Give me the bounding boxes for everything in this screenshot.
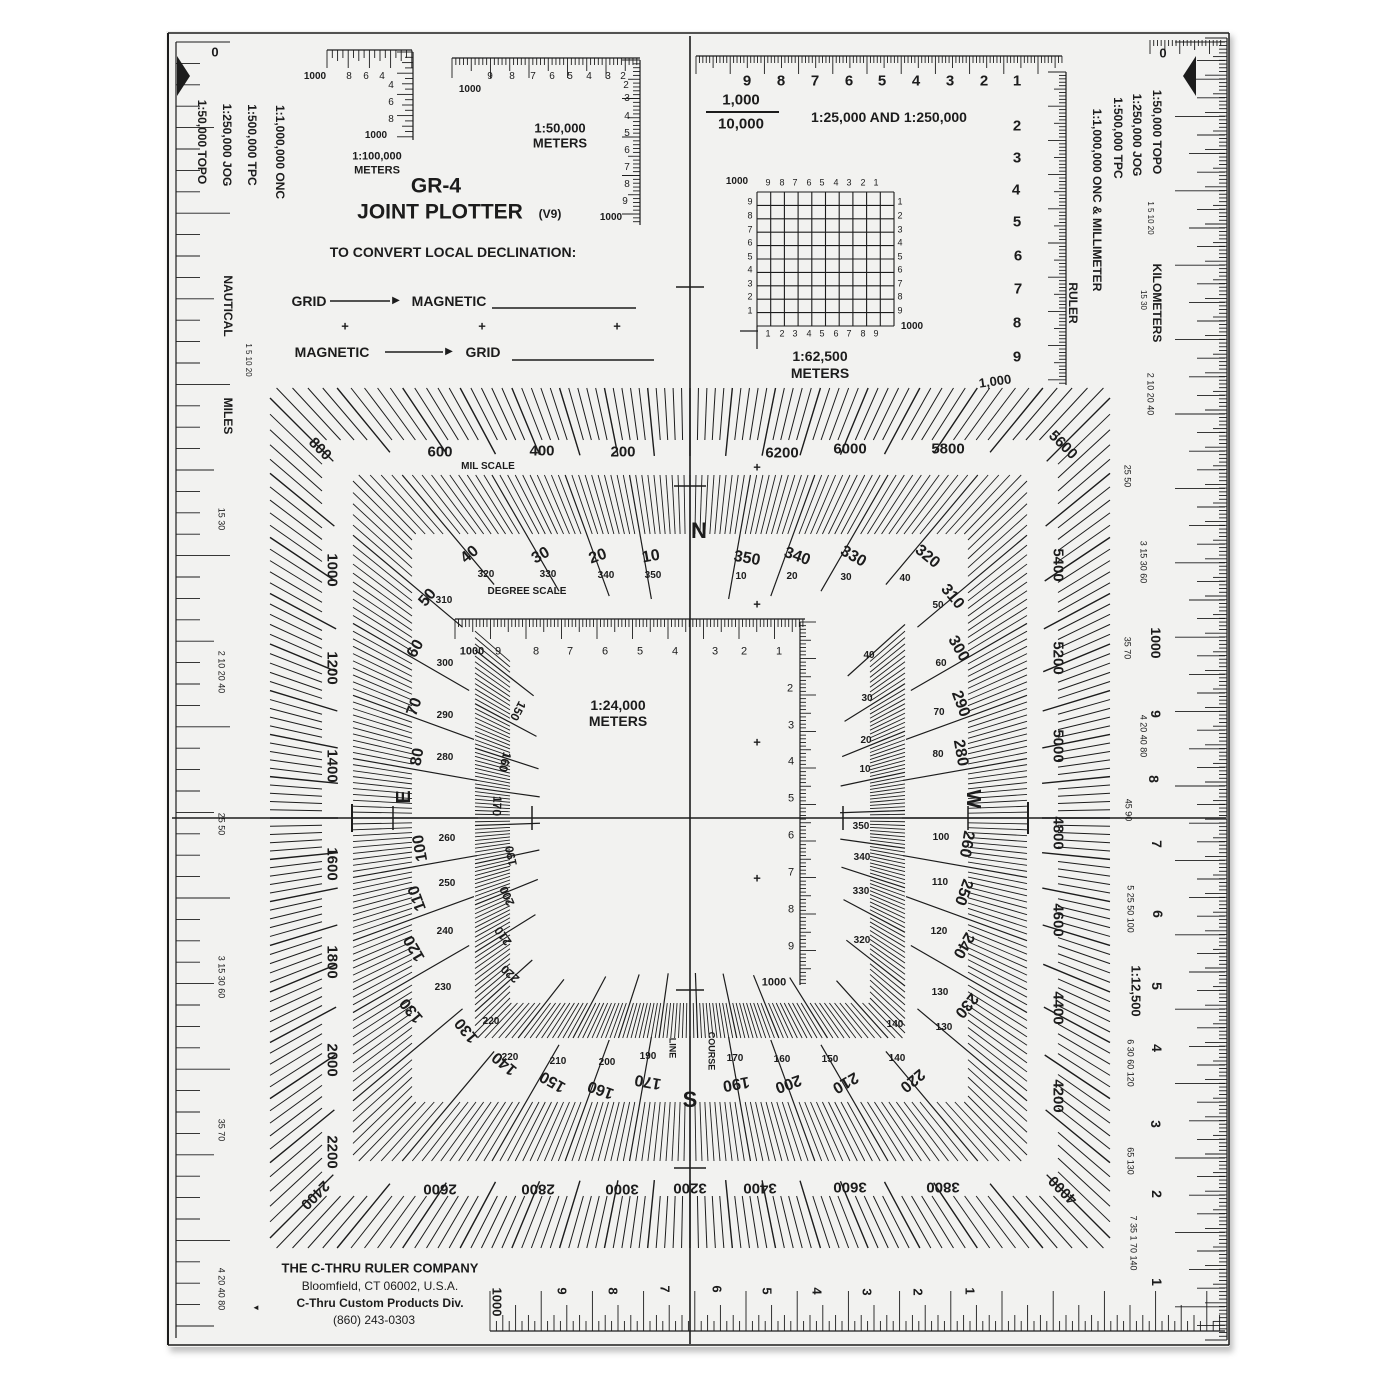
grid62-num: 2 xyxy=(779,330,784,339)
plus-mark: + xyxy=(753,872,761,885)
deg-small: 220 xyxy=(483,1017,500,1027)
mil-num: 3000 xyxy=(605,1182,638,1197)
right-nums: 2 10 20 40 xyxy=(1146,373,1155,416)
right-km: 1000 xyxy=(1149,627,1163,658)
r50k-title: METERS xyxy=(533,137,587,150)
grid62-num: 4 xyxy=(806,330,811,339)
deg-scale-label: DEGREE SCALE xyxy=(488,587,567,597)
line-label: LINE xyxy=(668,1038,677,1059)
r24k-num: 6 xyxy=(788,831,794,842)
deg-small: 330 xyxy=(540,570,557,580)
mil-num: 5400 xyxy=(1051,548,1066,581)
r24k-num: 1 xyxy=(776,647,782,658)
deg-small: 250 xyxy=(439,879,456,889)
deg-big: 280 xyxy=(950,738,970,767)
deg-big: 190 xyxy=(721,1073,750,1093)
right-scale-12500: 1:12,500 xyxy=(1130,965,1143,1016)
grid62-title: 1:62,500 xyxy=(792,349,847,363)
deg-big: 80 xyxy=(409,747,428,767)
grid62-num: 9 xyxy=(765,179,770,188)
mil-num: 3200 xyxy=(673,1181,706,1196)
deg-small: 320 xyxy=(478,570,495,580)
grid62-num: 3 xyxy=(747,280,752,289)
mil-num: 5000 xyxy=(1051,729,1066,762)
mil-num: 6200 xyxy=(765,446,798,461)
right-nums: 7 35 1 70 140 xyxy=(1129,1215,1138,1270)
deg-big: 10 xyxy=(641,548,661,567)
deg-small: 30 xyxy=(861,694,872,704)
grid62-num: 1 xyxy=(747,307,752,316)
r24k-title: METERS xyxy=(589,714,647,728)
deg-small: 20 xyxy=(860,736,871,746)
left-scale-jog: 1:250,000 JOG xyxy=(221,104,233,187)
deg-small: 110 xyxy=(932,878,948,888)
right-nums: 3 15 30 60 xyxy=(1139,541,1148,584)
deg-small: 200 xyxy=(599,1058,616,1068)
compass-east: E xyxy=(394,790,414,803)
left-scale-onc: 1:1,000,000 ONC xyxy=(274,105,286,199)
r50k-num: 3 xyxy=(624,94,630,104)
deg-small: 330 xyxy=(853,887,870,897)
deg-small: 280 xyxy=(437,753,454,763)
compass-north: N xyxy=(691,520,707,542)
right-km: 5 xyxy=(1150,982,1164,990)
grid62-num: 5 xyxy=(747,253,752,262)
r50k-num: 9 xyxy=(487,72,493,82)
r24k-num: 6 xyxy=(602,647,608,658)
r25k-num: 7 xyxy=(811,74,819,89)
right-nums: 4 20 40 80 xyxy=(1139,715,1148,758)
mil-num: 1000 xyxy=(325,553,340,586)
mil-num: 4600 xyxy=(1051,903,1066,936)
grid62-num: 2 xyxy=(747,293,752,302)
grid62-num: 1000 xyxy=(901,322,923,332)
r50k-num: 5 xyxy=(567,72,573,82)
bottom-ruler-num: 6 xyxy=(711,1285,724,1292)
r24k-num: 2 xyxy=(787,684,793,695)
right-km: 2 xyxy=(1150,1190,1164,1198)
decl-arrow: ▶ xyxy=(445,347,453,357)
product-model: GR-4 xyxy=(411,176,461,197)
left-nums: 2 10 20 40 xyxy=(217,651,226,694)
deg-small: 10 xyxy=(735,572,746,582)
grid62-num: 7 xyxy=(792,179,797,188)
right-scale-tpc: 1:500,000 TPC xyxy=(1112,97,1124,178)
r25k-num: 5 xyxy=(1013,215,1021,230)
right-km: 1 xyxy=(1150,1278,1164,1286)
mil-num: 5200 xyxy=(1051,641,1066,674)
right-km: 4 xyxy=(1150,1044,1164,1052)
decl-magnetic: MAGNETIC xyxy=(295,345,370,359)
company-address: Bloomfield, CT 06002, U.S.A. xyxy=(302,1280,459,1292)
decl-grid: GRID xyxy=(292,294,327,308)
decl-arrow: ▶ xyxy=(392,296,400,306)
decl-magnetic: MAGNETIC xyxy=(412,294,487,308)
deg-small: 140 xyxy=(889,1054,906,1064)
r24k-num: 8 xyxy=(788,905,794,916)
mil-num: 3600 xyxy=(833,1180,866,1195)
deg-small: 20 xyxy=(786,572,797,582)
r24k-num: 9 xyxy=(495,647,501,658)
bottom-ruler-num: 7 xyxy=(659,1285,672,1292)
fan-num: 190 xyxy=(503,845,519,867)
deg-small: 120 xyxy=(931,927,948,937)
r25k-num: 9 xyxy=(1013,350,1021,365)
r25k-num: 6 xyxy=(845,74,853,89)
r25k-num: 4 xyxy=(1012,183,1020,198)
deg-small: 240 xyxy=(437,927,454,937)
deg-small: 140 xyxy=(887,1020,904,1030)
deg-small: 220 xyxy=(502,1053,519,1063)
mil-num: 2200 xyxy=(325,1135,340,1168)
mil-num: 2800 xyxy=(521,1182,554,1197)
deg-big: 170 xyxy=(633,1071,662,1091)
deg-small: 30 xyxy=(840,573,851,583)
r100k-num: 8 xyxy=(388,115,394,125)
deg-small: 290 xyxy=(437,711,454,721)
right-nums: 5 25 50 100 xyxy=(1126,885,1135,933)
deg-small: 340 xyxy=(598,571,615,581)
deg-small: 170 xyxy=(727,1054,744,1064)
compass-south: S xyxy=(683,1089,698,1111)
grid62-num: 1 xyxy=(897,198,902,207)
grid62-title: METERS xyxy=(791,366,849,380)
right-km: 8 xyxy=(1147,775,1161,783)
r24k-num: 5 xyxy=(788,794,794,805)
right-nums: 6 30 60 120 xyxy=(1126,1039,1135,1087)
grid62-num: 6 xyxy=(833,330,838,339)
deg-small: 300 xyxy=(437,659,454,669)
ruler-word: RULER xyxy=(1067,282,1079,323)
mil-num: 5800 xyxy=(931,442,964,457)
deg-small: 150 xyxy=(822,1055,839,1065)
grid62-num: 6 xyxy=(897,266,902,275)
course-label: COURSE xyxy=(707,1032,716,1071)
r25k-num: 3 xyxy=(1013,151,1021,166)
grid62-num: 8 xyxy=(747,212,752,221)
r50k-num: 5 xyxy=(624,129,630,139)
grid62-num: 9 xyxy=(897,307,902,316)
plotter-scan: 01:50,000 TOPO1:250,000 JOG1:500,000 TPC… xyxy=(0,0,1388,1388)
deg-small: 350 xyxy=(853,822,870,832)
r24k-num: 7 xyxy=(567,647,573,658)
deg-small: 260 xyxy=(439,834,456,844)
bottom-ruler-num: 1 xyxy=(964,1287,977,1294)
mil-scale-label: MIL SCALE xyxy=(461,462,515,472)
deg-small: 340 xyxy=(854,853,871,863)
grid62-num: 4 xyxy=(897,239,902,248)
deg-small: 100 xyxy=(933,833,950,843)
deg-small: 60 xyxy=(935,659,946,669)
r25k-num: 3 xyxy=(946,74,954,89)
r100k-num: 6 xyxy=(363,72,369,82)
r24k-num: 9 xyxy=(788,942,794,953)
r25k-num: 8 xyxy=(1013,316,1021,331)
r50k-num: 7 xyxy=(624,163,630,173)
mil-num: 4400 xyxy=(1051,991,1066,1024)
r50k-num: 2 xyxy=(623,81,629,91)
r25k-num: 6 xyxy=(1014,249,1022,264)
left-miles: MILES xyxy=(222,398,234,435)
grid62-num: 2 xyxy=(860,179,865,188)
r25k-num: 7 xyxy=(1014,282,1022,297)
r50k-num: 8 xyxy=(509,72,515,82)
mil-num: 600 xyxy=(427,445,452,460)
r50k-num: 6 xyxy=(624,146,630,156)
mil-num: 3800 xyxy=(926,1180,959,1195)
r100k-num: 4 xyxy=(388,81,394,91)
deg-small: 10 xyxy=(859,765,870,775)
mil-num: 1400 xyxy=(325,749,340,782)
r50k-num: 3 xyxy=(605,72,611,82)
grid62-num: 6 xyxy=(806,179,811,188)
grid62-num: 3 xyxy=(846,179,851,188)
r100k-title: METERS xyxy=(354,166,400,177)
left-scale-topo: 1:50,000 TOPO xyxy=(196,100,208,185)
bottom-ruler-num: 5 xyxy=(761,1287,774,1294)
r25k-num: 1 xyxy=(1013,74,1021,89)
deg-small: 320 xyxy=(854,936,871,946)
r24k-num: 5 xyxy=(637,647,643,658)
r50k-num: 4 xyxy=(624,112,630,122)
r25k-num: 5 xyxy=(878,74,886,89)
fan-num: 170 xyxy=(491,796,504,816)
mil-num: 3400 xyxy=(743,1181,776,1196)
grid62-num: 1 xyxy=(765,330,770,339)
decl-grid: GRID xyxy=(466,345,501,359)
r25k-num: 2 xyxy=(980,74,988,89)
deg-small: 350 xyxy=(645,571,662,581)
right-km: 9 xyxy=(1149,710,1163,718)
left-nums: 15 30 xyxy=(217,508,226,531)
left-scale-tpc: 1:500,000 TPC xyxy=(246,104,258,185)
deg-small: 40 xyxy=(863,651,874,661)
grid62-num: 9 xyxy=(747,198,752,207)
r50k-title: 1:50,000 xyxy=(534,122,585,135)
mil-num: 400 xyxy=(529,444,554,459)
r50k-num: 4 xyxy=(586,72,592,82)
mil-num: 2600 xyxy=(423,1182,456,1197)
mil-num: 1200 xyxy=(325,651,340,684)
deg-small: 210 xyxy=(550,1057,567,1067)
mil-num: 4800 xyxy=(1051,816,1066,849)
right-km: 6 xyxy=(1151,910,1165,918)
grid62-num: 5 xyxy=(897,253,902,262)
right-nums: 1 5 10 20 xyxy=(1146,201,1154,234)
grid62-num: 5 xyxy=(819,179,824,188)
bottom-ruler-num: 2 xyxy=(912,1288,925,1295)
mil-num: 200 xyxy=(610,445,635,460)
r100k-num: 1000 xyxy=(365,131,387,141)
declination-heading: TO CONVERT LOCAL DECLINATION: xyxy=(330,245,577,259)
decl-plus: + xyxy=(478,320,486,333)
r50k-num: 7 xyxy=(530,72,536,82)
mil-num: 6000 xyxy=(833,442,866,457)
right-scale-onc: 1:1,000,000 ONC & MILLIMETER xyxy=(1091,109,1103,292)
left-arrow: ◄ xyxy=(252,1304,260,1312)
mil-num: 4200 xyxy=(1051,1079,1066,1112)
right-nums: 25 50 xyxy=(1123,465,1132,488)
right-nums: 35 70 xyxy=(1123,637,1132,660)
deg-big: 260 xyxy=(956,829,976,858)
r24k-num: 4 xyxy=(672,647,678,658)
mil-num: 1800 xyxy=(325,945,340,978)
deg-small: 40 xyxy=(899,574,910,584)
decl-plus: + xyxy=(341,320,349,333)
deg-small: 80 xyxy=(932,750,943,760)
grid62-num: 7 xyxy=(897,280,902,289)
company-division: C-Thru Custom Products Div. xyxy=(296,1297,463,1309)
right-scale-topo: 1:50,000 TOPO xyxy=(1151,90,1163,175)
r24k-num: 4 xyxy=(788,757,794,768)
r24k-num: 7 xyxy=(788,868,794,879)
grid62-num: 1 xyxy=(873,179,878,188)
left-nums: 1 5 10 20 xyxy=(244,343,252,376)
right-nums: 15 30 xyxy=(1139,290,1147,310)
right-kilometers: KILOMETERS xyxy=(1151,264,1163,343)
right-nums: 45 90 xyxy=(1124,799,1133,822)
r50k-num: 8 xyxy=(624,180,630,190)
bottom-ruler-num: 8 xyxy=(607,1287,620,1294)
left-zero: 0 xyxy=(211,46,218,59)
plus-mark: + xyxy=(753,461,761,474)
grid62-num: 8 xyxy=(897,293,902,302)
r50k-num: 6 xyxy=(549,72,555,82)
bottom-ruler-num: 1000 xyxy=(491,1288,504,1317)
grid62-num: 1000 xyxy=(726,177,748,187)
deg-small: 130 xyxy=(932,988,949,998)
r24k-title: 1:24,000 xyxy=(590,698,645,712)
left-nums: 4 20 40 80 xyxy=(217,1268,226,1311)
r25k-frac-top: 1,000 xyxy=(722,93,760,108)
product-version: (V9) xyxy=(539,208,562,220)
plus-mark: + xyxy=(753,736,761,749)
grid62-num: 6 xyxy=(747,239,752,248)
r25k-frac-bot: 10,000 xyxy=(718,117,764,132)
r100k-num: 1000 xyxy=(304,72,326,82)
deg-small: 230 xyxy=(435,983,452,993)
r24k-num: 1000 xyxy=(460,647,484,658)
left-nums: 3 15 30 60 xyxy=(217,956,226,999)
r25k-num: 8 xyxy=(777,74,785,89)
r24k-num: 3 xyxy=(788,721,794,732)
right-nums: 65 130 xyxy=(1126,1147,1135,1175)
grid62-num: 8 xyxy=(779,179,784,188)
grid62-num: 3 xyxy=(792,330,797,339)
grid62-num: 4 xyxy=(747,266,752,275)
plus-mark: + xyxy=(753,598,761,611)
right-km: 3 xyxy=(1149,1120,1163,1128)
company-name: THE C-THRU RULER COMPANY xyxy=(282,1262,479,1275)
mil-num: 1600 xyxy=(325,847,340,880)
right-scale-jog: 1:250,000 JOG xyxy=(1131,94,1143,177)
deg-small: 130 xyxy=(936,1023,953,1033)
r24k-num: 2 xyxy=(741,647,747,658)
r100k-num: 6 xyxy=(388,98,394,108)
deg-small: 160 xyxy=(774,1055,791,1065)
r25k-num: 2 xyxy=(1013,119,1021,134)
r50k-num: 1000 xyxy=(600,213,622,223)
right-zero: 0 xyxy=(1159,47,1166,60)
product-name: JOINT PLOTTER xyxy=(357,202,523,223)
deg-small: 310 xyxy=(436,596,453,606)
mil-num: 2000 xyxy=(325,1043,340,1076)
grid62-num: 7 xyxy=(747,226,752,235)
r24k-num: 3 xyxy=(712,647,718,658)
left-nums: 25 50 xyxy=(217,813,226,836)
deg-small: 70 xyxy=(933,708,944,718)
grid62-num: 8 xyxy=(860,330,865,339)
bottom-ruler-num: 3 xyxy=(861,1288,874,1295)
r100k-num: 8 xyxy=(346,72,352,82)
grid62-num: 5 xyxy=(819,330,824,339)
grid62-num: 2 xyxy=(897,212,902,221)
r50k-num: 1000 xyxy=(459,85,481,95)
r24k-num: 1000 xyxy=(762,978,786,989)
r25k-num: 9 xyxy=(743,74,751,89)
deg-small: 50 xyxy=(932,601,943,611)
bottom-ruler-num: 4 xyxy=(811,1287,824,1294)
decl-plus: + xyxy=(613,320,621,333)
deg-small: 190 xyxy=(640,1052,657,1062)
bottom-ruler-num: 9 xyxy=(556,1287,569,1294)
grid62-num: 9 xyxy=(873,330,878,339)
grid62-num: 4 xyxy=(833,179,838,188)
r50k-num: 9 xyxy=(622,197,628,207)
r100k-title: 1:100,000 xyxy=(352,152,402,163)
grid62-num: 3 xyxy=(897,226,902,235)
left-nautical: NAUTICAL xyxy=(222,275,234,336)
grid62-num: 7 xyxy=(846,330,851,339)
company-phone: (860) 243-0303 xyxy=(333,1314,415,1326)
right-km: 7 xyxy=(1150,840,1164,848)
r25k-num: 4 xyxy=(912,74,920,89)
compass-west: W xyxy=(963,790,983,809)
r100k-num: 4 xyxy=(379,72,385,82)
r25k-title: 1:25,000 AND 1:250,000 xyxy=(811,110,967,124)
left-nums: 35 70 xyxy=(217,1119,226,1142)
r24k-num: 8 xyxy=(533,647,539,658)
